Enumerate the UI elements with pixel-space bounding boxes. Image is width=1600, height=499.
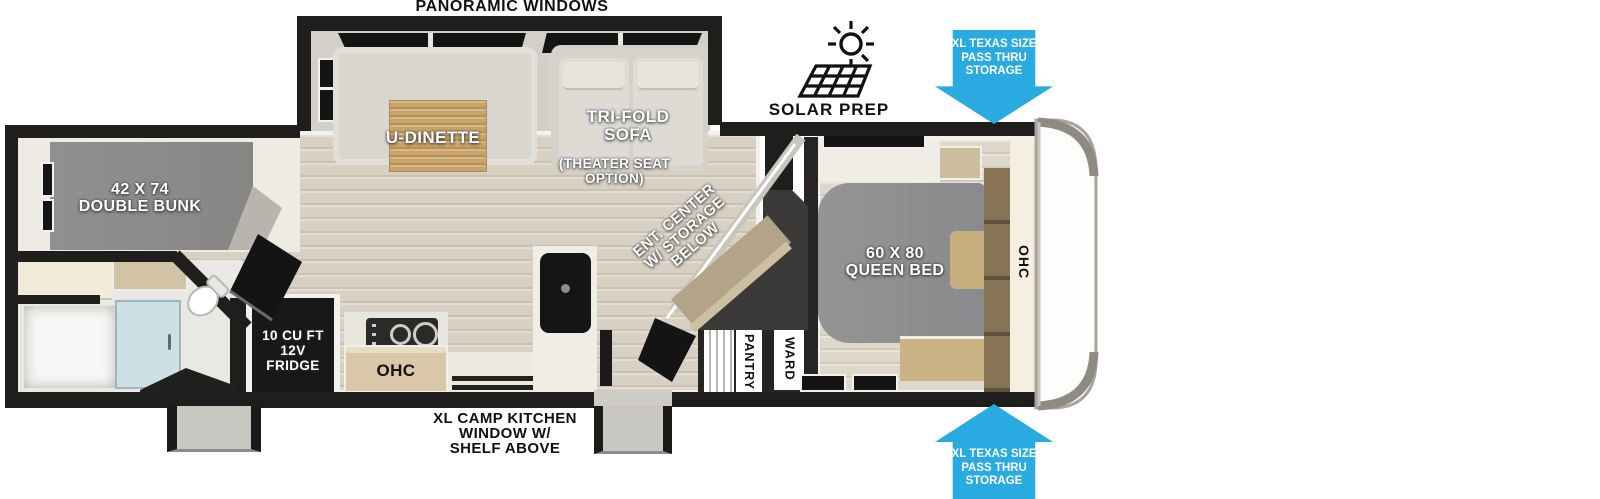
front-cap (1036, 120, 1096, 408)
rv-floorplan: 42 X 74 DOUBLE BUNK U-DINETTE TRI-FOLD S… (0, 0, 1600, 499)
solar-prep-label: SOLAR PREP (764, 100, 894, 120)
panoramic-windows-label: PANORAMIC WINDOWS (392, 0, 632, 16)
camp-kitchen-label: XL CAMP KITCHEN WINDOW W/ SHELF ABOVE (400, 411, 610, 456)
solar-panel-icon (800, 21, 874, 96)
entry-door-open (638, 318, 696, 382)
bath-threshold (140, 368, 236, 393)
